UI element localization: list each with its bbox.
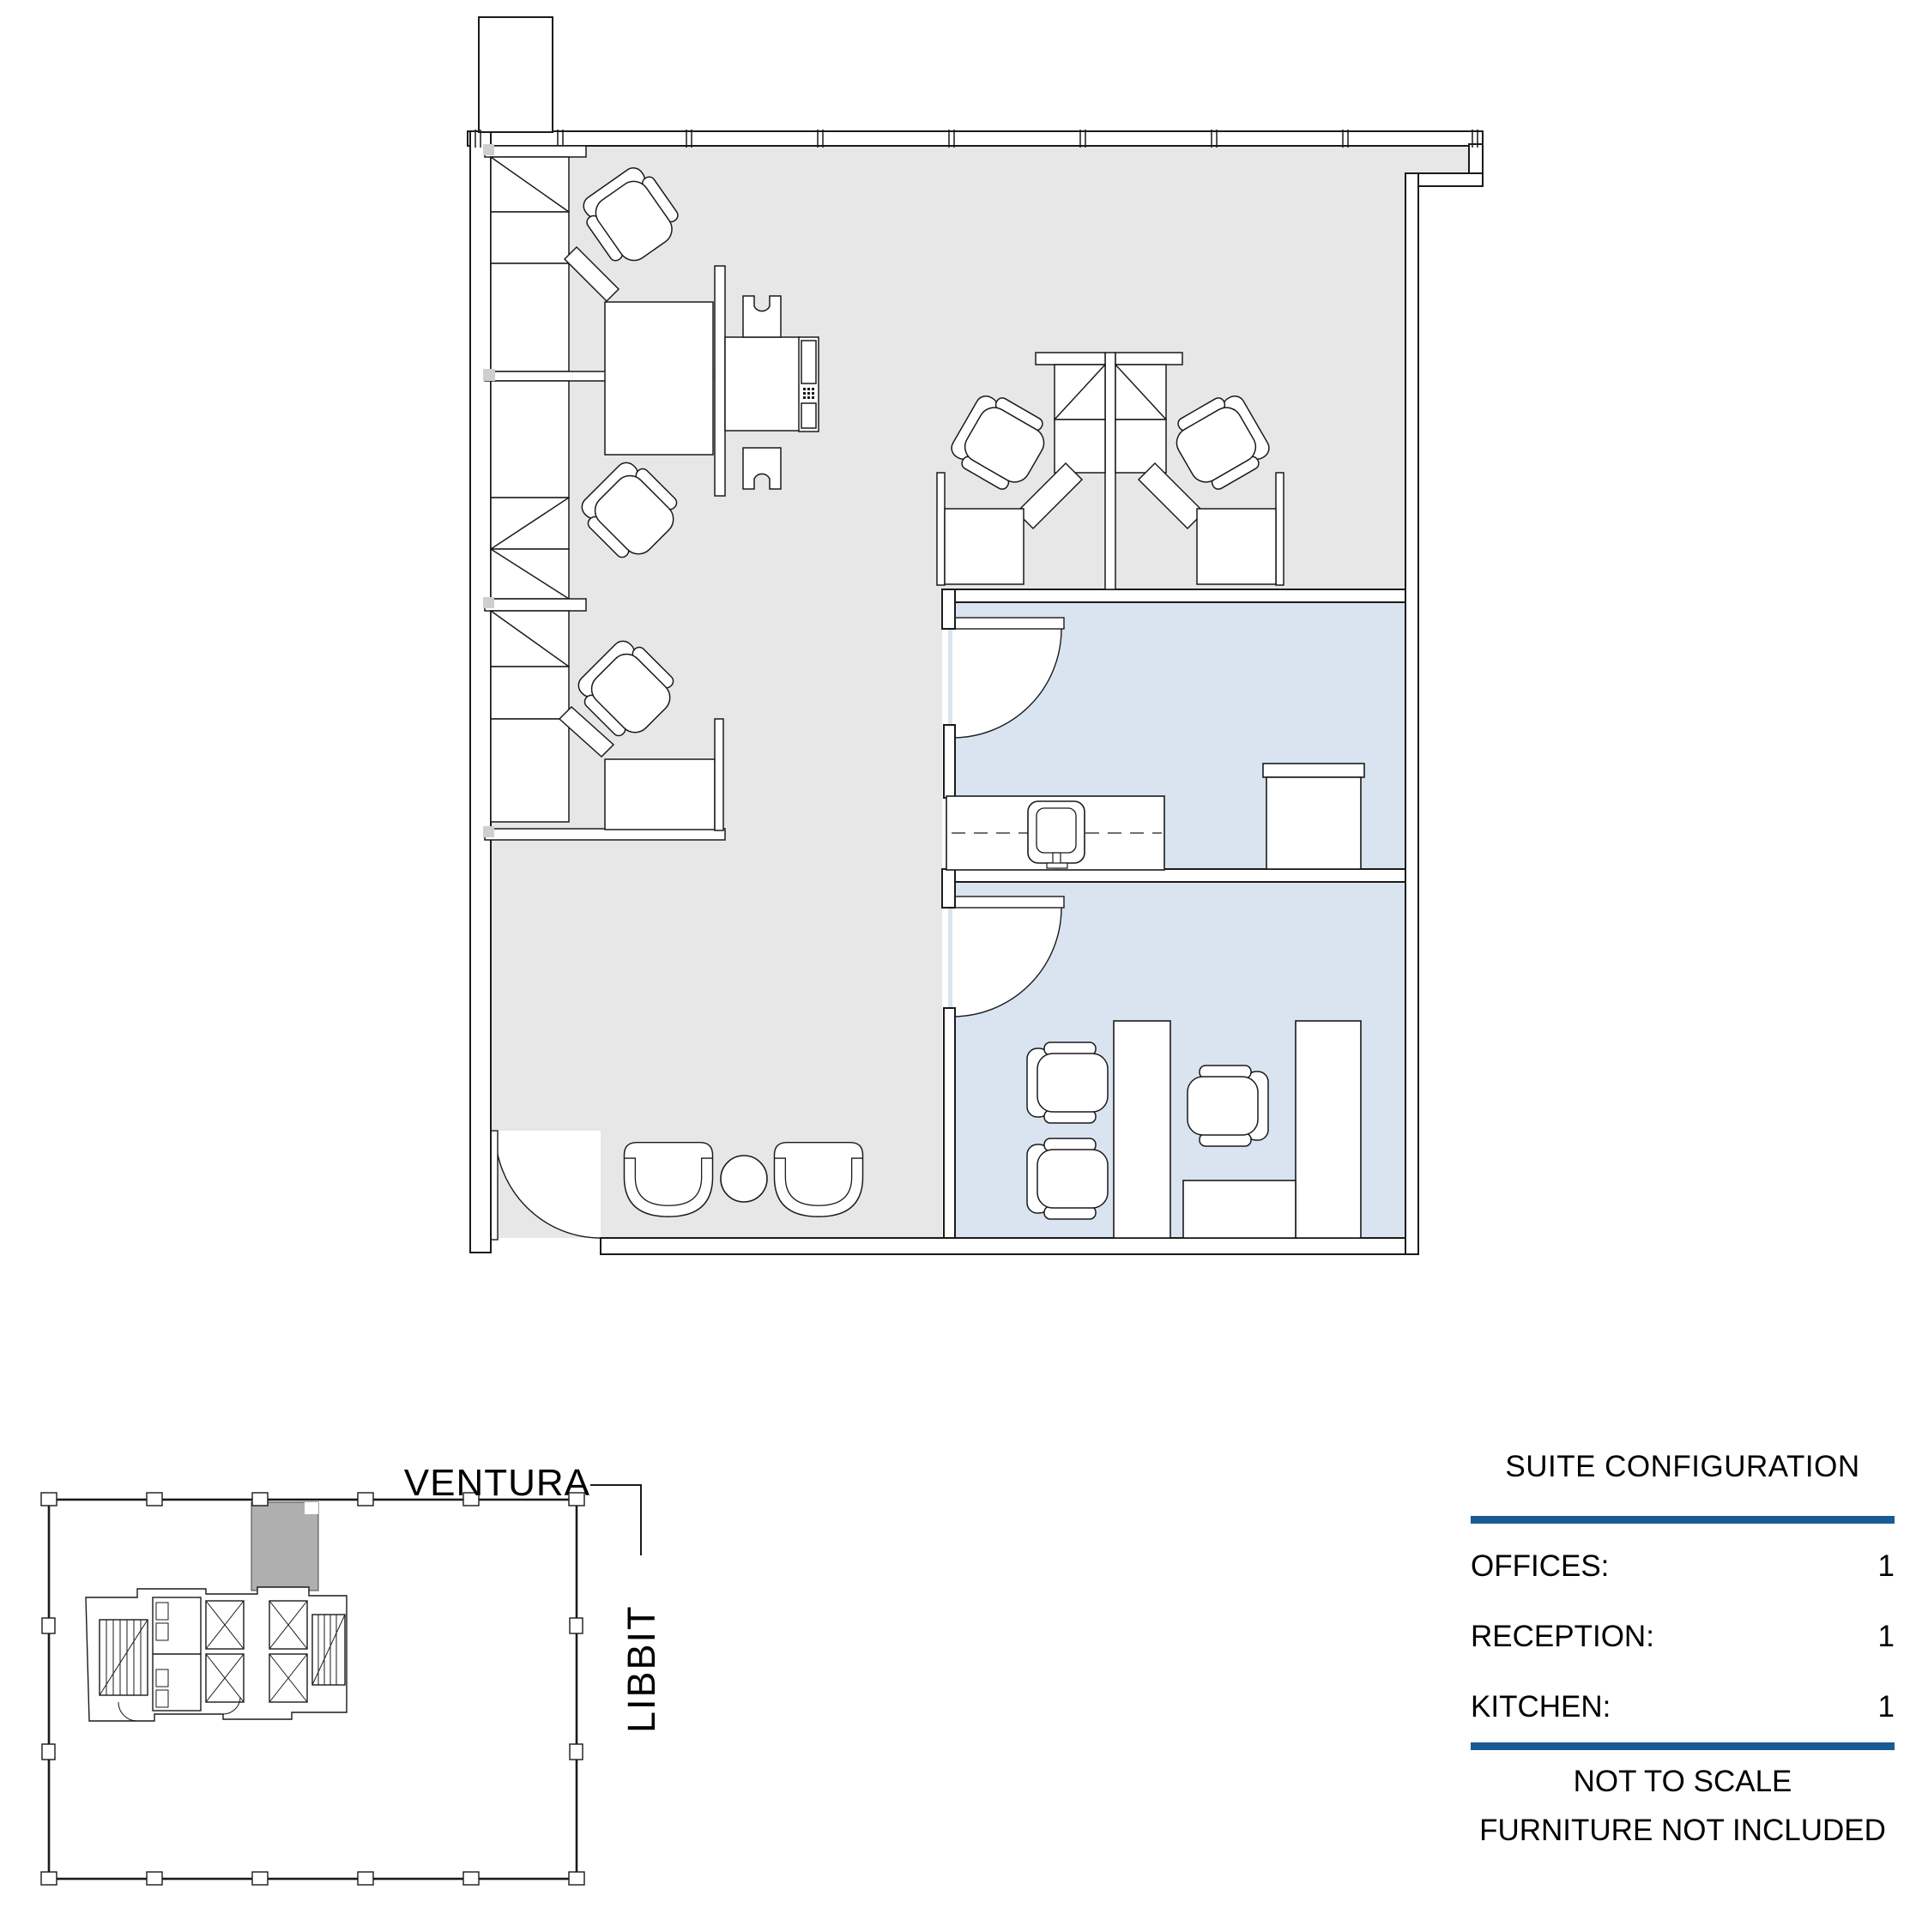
lower-desk (1197, 509, 1276, 584)
cabinet (491, 263, 569, 371)
upper-shelf (485, 146, 586, 157)
pod-divider-panel (715, 266, 725, 496)
upper-desk (1055, 420, 1105, 473)
config-label: KITCHEN: (1471, 1690, 1611, 1724)
key-plan (41, 1485, 641, 1885)
reception-chair (624, 1143, 712, 1217)
bottom-wall (601, 1238, 1418, 1254)
refrigerator-top (1263, 764, 1364, 777)
mid-shelf (485, 599, 586, 611)
kitchen-office-wall (942, 869, 1405, 882)
panel-rule-bottom (1471, 1742, 1895, 1750)
suite-configuration-panel: SUITE CONFIGURATION OFFICES: 1 RECEPTION… (1471, 1450, 1895, 1848)
config-label: RECEPTION: (1471, 1620, 1654, 1654)
refrigerator (1266, 777, 1361, 869)
overhead-shelf (1036, 353, 1105, 365)
faucet-bar (1047, 863, 1067, 868)
pod-desk-right (725, 337, 800, 431)
cabinet (491, 381, 569, 498)
main-suite-plan (468, 17, 1483, 1254)
config-value: 1 (1878, 1620, 1895, 1654)
office-desk (1114, 1021, 1170, 1238)
guest-chair (1027, 1042, 1108, 1123)
note-furniture: FURNITURE NOT INCLUDED (1471, 1814, 1895, 1848)
building-core (86, 1587, 347, 1721)
note-not-to-scale: NOT TO SCALE (1471, 1765, 1895, 1799)
lower-desk (945, 509, 1024, 584)
notch-wall-vertical (1469, 144, 1483, 175)
floor-plan-sheet: VENTURA LIBBIT SUITE CONFIGURATION OFFIC… (0, 0, 1922, 1932)
keypad-dots (803, 388, 814, 399)
cluster-divider (1105, 353, 1115, 589)
roof-shaft (479, 17, 553, 132)
street-label-libbit: LIBBIT (620, 1604, 664, 1733)
right-wall (1405, 173, 1418, 1254)
config-row-offices: OFFICES: 1 (1471, 1549, 1895, 1584)
reception-chair (774, 1143, 862, 1217)
task-chair (1188, 1066, 1268, 1146)
panel-rule-top (1471, 1516, 1895, 1524)
kitchen-office-wall-cap (942, 869, 955, 908)
pod-desk-left (605, 302, 713, 455)
config-label: OFFICES: (1471, 1549, 1609, 1584)
kitchen-top-wall (942, 589, 1405, 602)
office-side-stub (944, 1008, 955, 1238)
cabinet (491, 212, 569, 263)
cpu-box (801, 403, 816, 428)
panel-title: SUITE CONFIGURATION (1471, 1450, 1895, 1484)
office-desk (1296, 1021, 1361, 1238)
side-panel (1276, 473, 1284, 585)
side-table (721, 1156, 767, 1202)
config-value: 1 (1878, 1549, 1895, 1584)
office-desk-return (1183, 1180, 1296, 1238)
window-wall (468, 131, 1483, 146)
guest-chair (1027, 1138, 1108, 1219)
config-value: 1 (1878, 1690, 1895, 1724)
upper-desk (1115, 420, 1166, 473)
mid-rail (485, 371, 607, 381)
notch-wall-horizontal (1418, 173, 1483, 186)
config-row-reception: RECEPTION: 1 (1471, 1620, 1895, 1654)
kitchen-top-wall-cap (942, 589, 955, 629)
lower-desk-panel (715, 719, 723, 830)
suite-location-highlight (251, 1502, 318, 1591)
street-label-ventura: VENTURA (381, 1462, 590, 1505)
side-panel (937, 473, 945, 585)
lower-desk (605, 759, 715, 830)
street-label-libbit-wrap: LIBBIT (620, 1604, 664, 1733)
bottom-rail (485, 829, 725, 840)
cabinet (491, 667, 569, 719)
config-row-kitchen: KITCHEN: 1 (1471, 1690, 1895, 1724)
cabinet (491, 719, 569, 822)
overhead-shelf (1115, 353, 1182, 365)
left-wall (470, 131, 491, 1253)
ventura-leader-line (590, 1485, 641, 1555)
monitor (801, 341, 816, 383)
kitchen-side-stub (944, 725, 955, 798)
suite-highlight-notch (305, 1502, 318, 1514)
